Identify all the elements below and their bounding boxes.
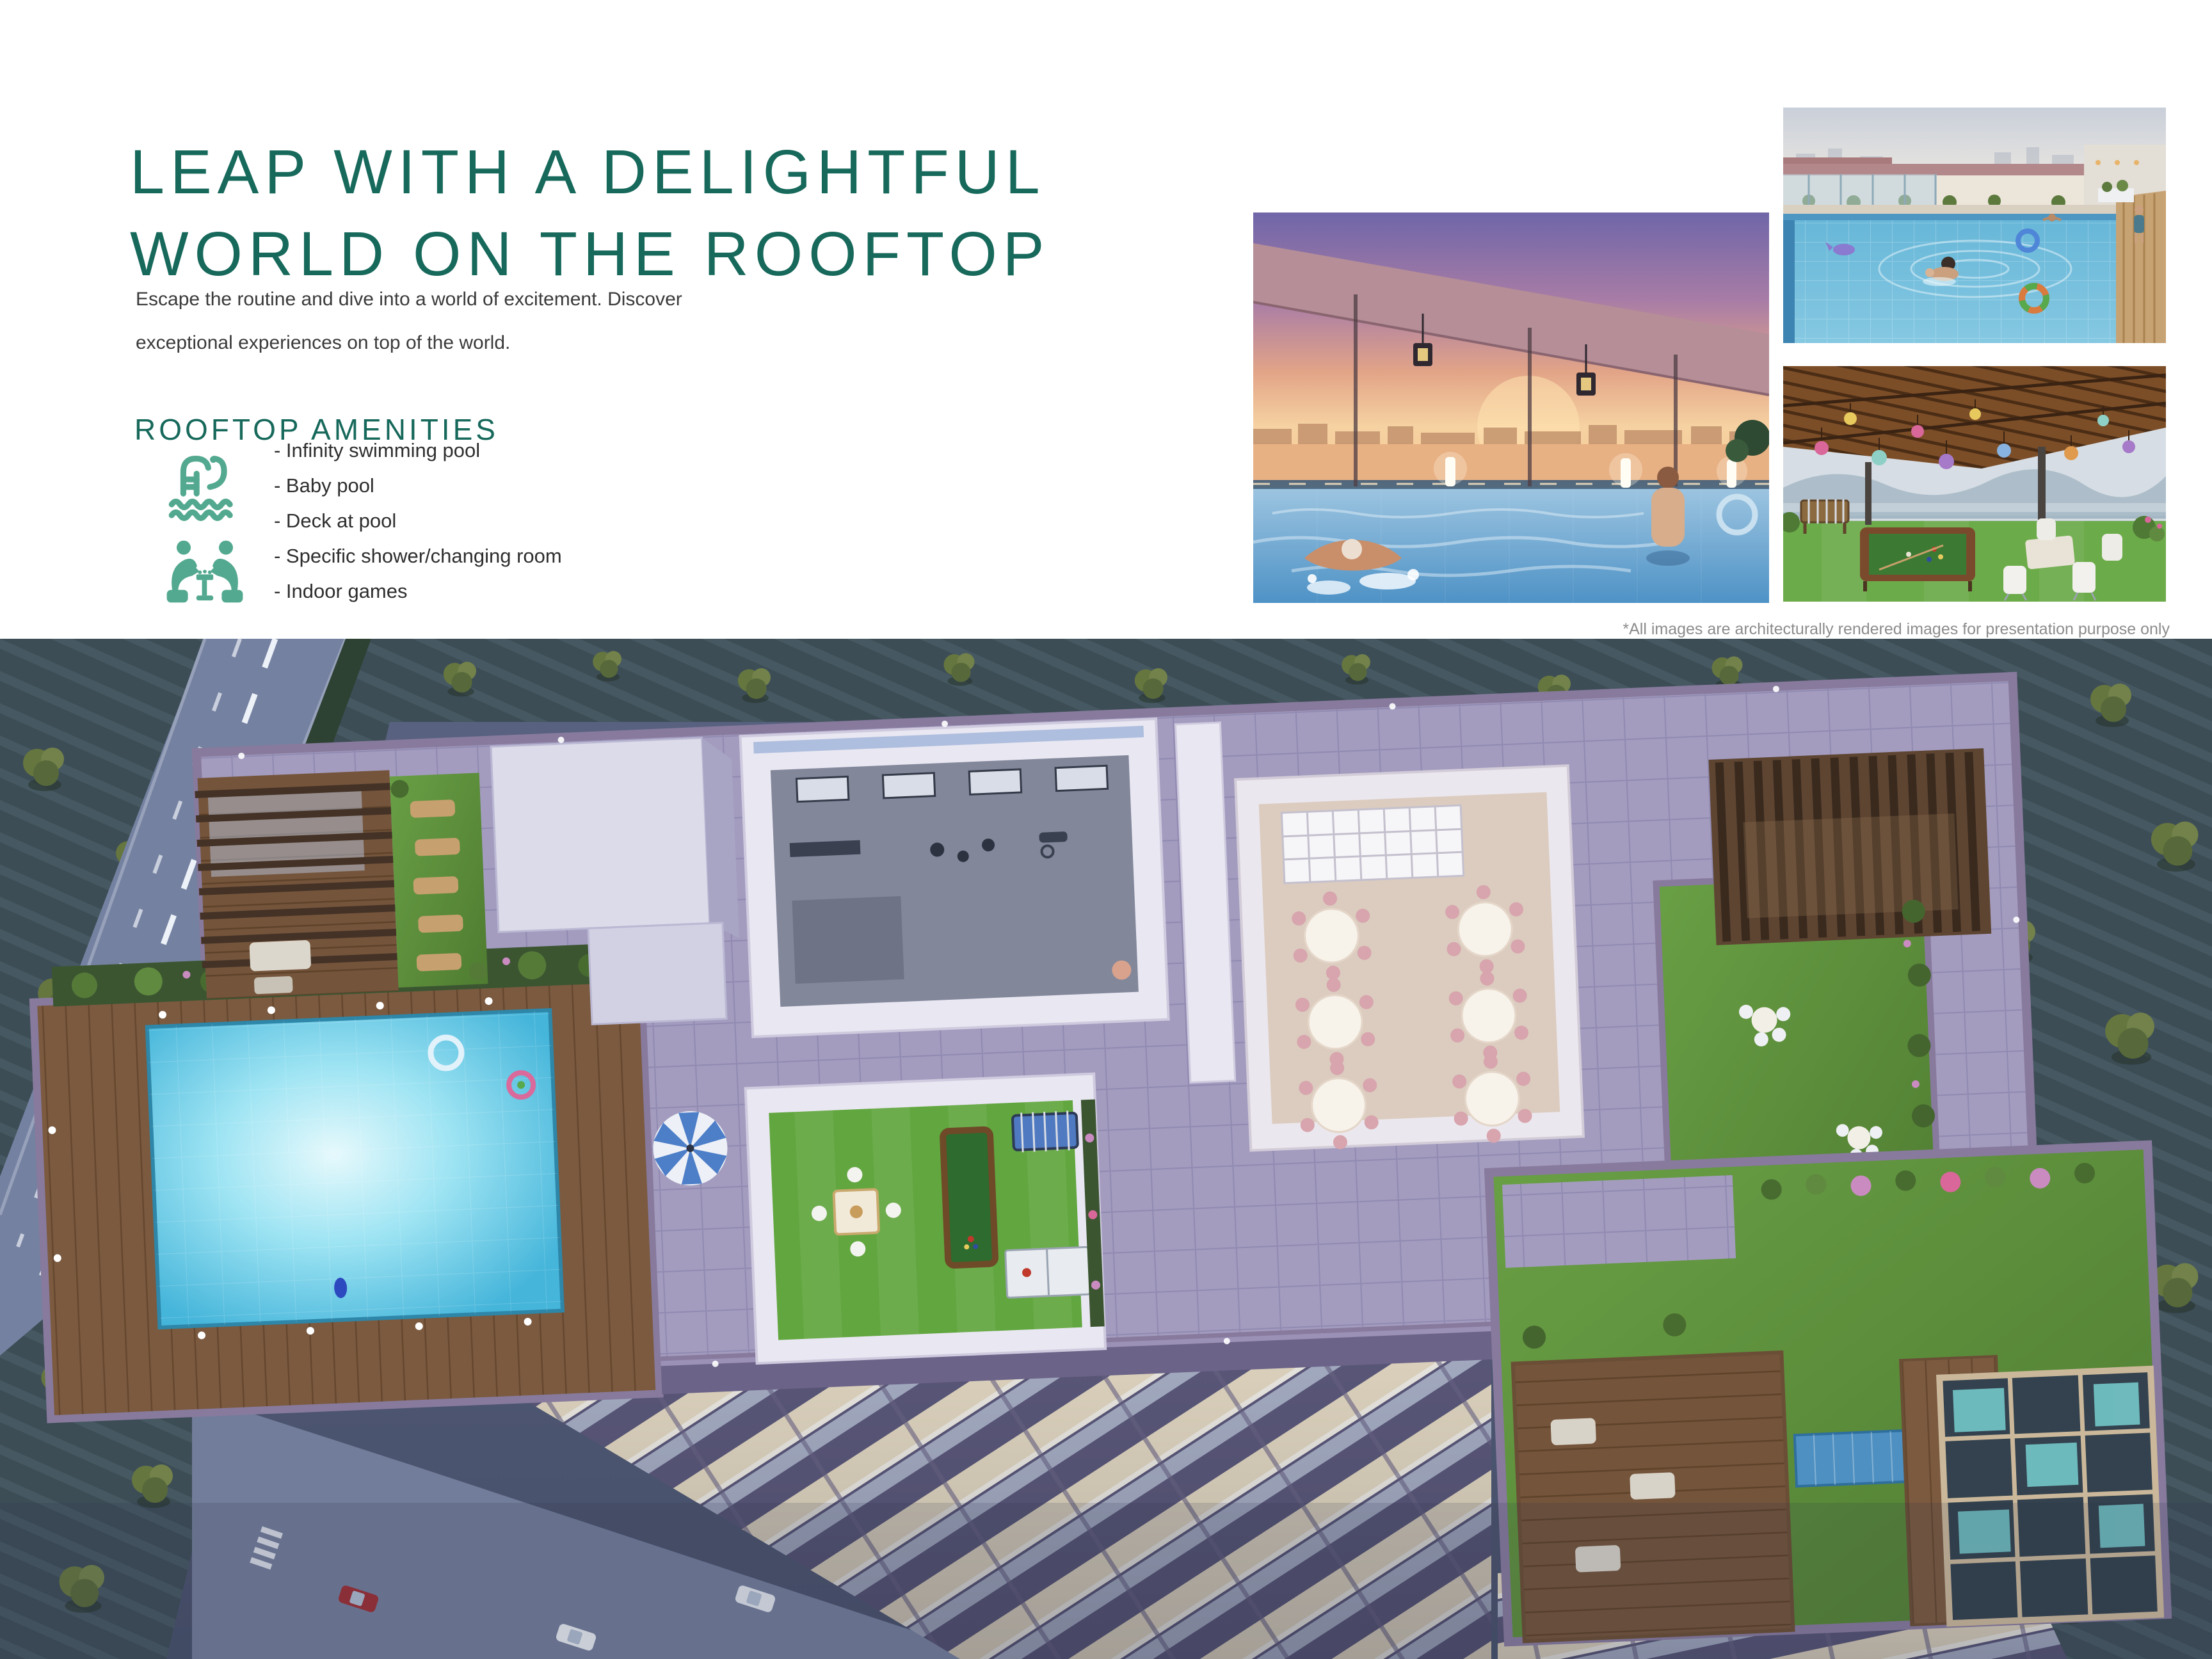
amenity-item: - Infinity swimming pool — [274, 433, 562, 468]
amenity-item: - Baby pool — [274, 468, 562, 503]
table-tennis — [1006, 1247, 1091, 1297]
aerial-rooftop-render — [0, 639, 2212, 1659]
page-title: LEAP WITH A DELIGHTFUL WORLD ON THE ROOF… — [130, 131, 1050, 295]
page-title-line1: LEAP WITH A DELIGHTFUL — [130, 131, 1050, 213]
intro-text: Escape the routine and dive into a world… — [136, 278, 682, 364]
amenity-item: - Specific shower/changing room — [274, 538, 562, 573]
swimming-pool-icon — [154, 440, 250, 524]
intro-line1: Escape the routine and dive into a world… — [136, 278, 682, 321]
gym-room — [741, 719, 1169, 1037]
indoor-games-icon — [142, 536, 268, 607]
intro-line2: exceptional experiences on top of the wo… — [136, 321, 682, 365]
games-room — [746, 1074, 1106, 1363]
photo-rooftop-pool-day — [1783, 108, 2166, 343]
amenity-item: - Deck at pool — [274, 503, 562, 538]
photo-infinity-pool-sunset — [1253, 212, 1769, 603]
amenity-item: - Indoor games — [274, 573, 562, 609]
snooker-table — [943, 1129, 996, 1265]
pergola-lounge — [195, 770, 402, 999]
brochure-page: LEAP WITH A DELIGHTFUL WORLD ON THE ROOF… — [0, 0, 2212, 1659]
photo-indoor-games-pavilion — [1783, 366, 2166, 602]
image-disclaimer: *All images are architecturally rendered… — [1623, 620, 2170, 639]
amenities-list: - Infinity swimming pool - Baby pool - D… — [274, 433, 562, 609]
lawn-walk — [390, 773, 488, 988]
foosball-table — [1013, 1110, 1078, 1153]
banquet-hall — [1235, 765, 1583, 1153]
